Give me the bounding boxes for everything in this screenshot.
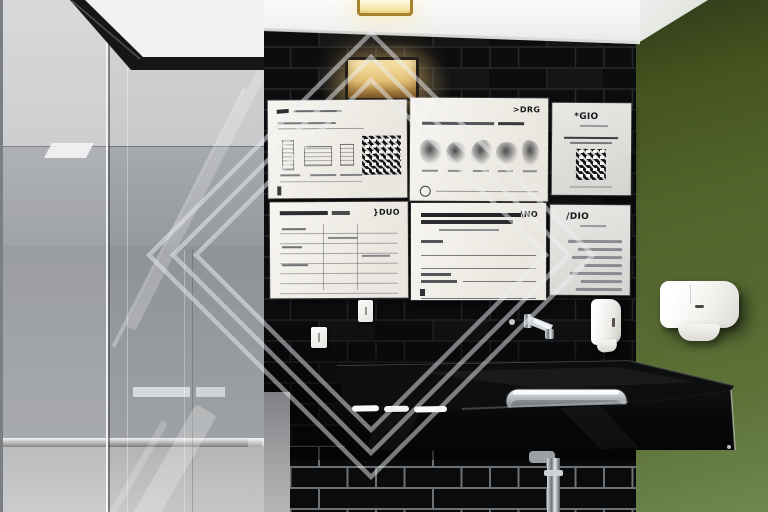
poster-bottom-middle: \NO [411,203,546,300]
light-switch [311,327,327,348]
paper-towel-dispenser [660,281,739,328]
glass-near-panel [0,0,108,512]
ceiling-light [357,0,413,16]
wall-sconce-light [345,57,419,101]
poster-top-middle: >DRG [410,98,549,202]
poster-logo: }DUO [373,209,400,217]
poster-logo: \NO [521,211,538,219]
poster-logo: /DIO [566,213,589,222]
glass-partition [0,0,264,512]
poster-top-left [268,100,408,199]
glass-highlight [44,143,94,158]
poster-bottom-left: }DUO [270,202,409,299]
poster-table [280,224,398,291]
counter-shadow-on-wall [264,290,636,460]
poster-top-right: *GIO [552,103,632,196]
paper-towel-tray [678,324,720,341]
soap-dispenser [591,299,621,345]
light-switch [358,300,373,322]
wall-return [262,392,290,512]
restroom-photo: >DRG *GIO }DUO \NO [0,0,768,512]
poster-bottom-right: /DIO [550,205,630,295]
qr-code [362,136,401,175]
poster-logo: >DRG [513,106,540,114]
poster-logo: *GIO [574,113,598,122]
qr-code [576,149,606,180]
green-accent-wall [630,0,768,512]
